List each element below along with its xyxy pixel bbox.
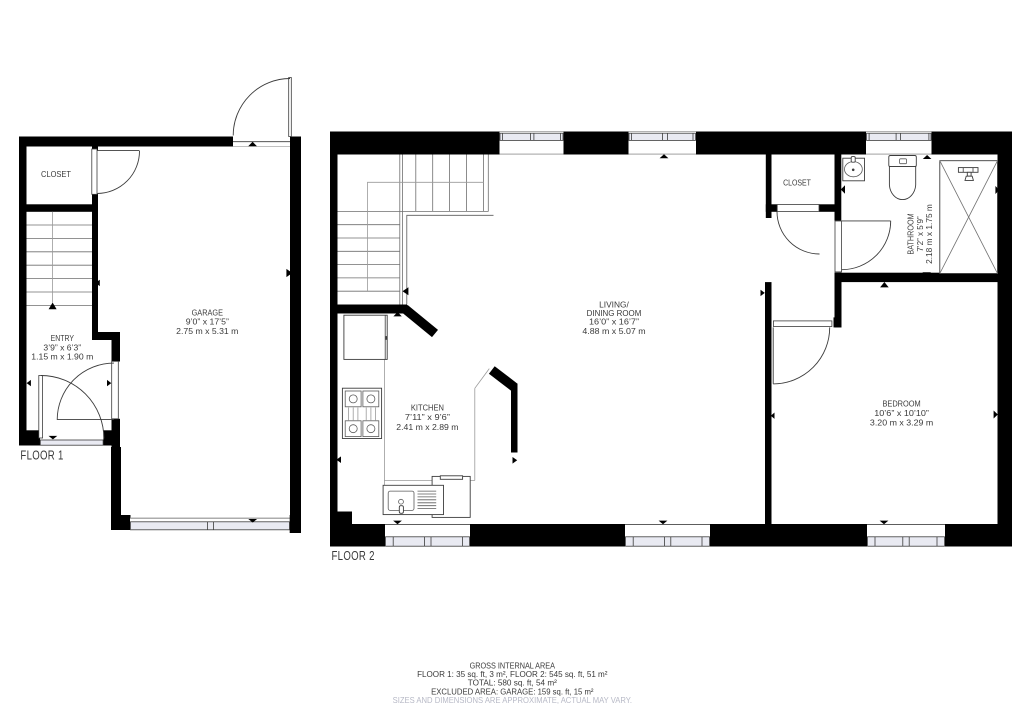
svg-text:3’9” x 6’3”: 3’9” x 6’3” (43, 343, 81, 352)
svg-text:2.41 m x 2.89 m: 2.41 m x 2.89 m (396, 423, 458, 432)
svg-text:3.20 m x 3.29 m: 3.20 m x 3.29 m (870, 418, 934, 427)
svg-text:2.75 m x 5.31 m: 2.75 m x 5.31 m (176, 327, 238, 336)
svg-text:16’0” x 16’7”: 16’0” x 16’7” (589, 318, 639, 327)
svg-text:SIZES AND DIMENSIONS ARE APPRO: SIZES AND DIMENSIONS ARE APPROXIMATE, AC… (393, 695, 632, 705)
svg-text:CLOSET: CLOSET (41, 169, 71, 179)
svg-text:7’2” x 5’9”: 7’2” x 5’9” (916, 216, 925, 252)
svg-text:BEDROOM: BEDROOM (882, 399, 920, 409)
svg-text:FLOOR 2: FLOOR 2 (332, 549, 375, 563)
svg-text:7’11” x 9’6”: 7’11” x 9’6” (405, 413, 450, 422)
svg-text:CLOSET: CLOSET (783, 178, 811, 188)
svg-text:ENTRY: ENTRY (51, 333, 75, 343)
svg-text:BATHROOM: BATHROOM (906, 213, 916, 254)
svg-text:9’0” x 17’5”: 9’0” x 17’5” (186, 318, 229, 327)
svg-text:1.15 m x 1.90 m: 1.15 m x 1.90 m (31, 353, 93, 362)
svg-text:4.88 m x 5.07 m: 4.88 m x 5.07 m (582, 327, 646, 336)
svg-text:KITCHEN: KITCHEN (411, 402, 444, 412)
svg-text:10’6” x 10’10”: 10’6” x 10’10” (874, 409, 929, 418)
svg-text:FLOOR 1: FLOOR 1 (20, 449, 63, 463)
svg-text:DINING ROOM: DINING ROOM (587, 308, 642, 318)
svg-text:2.18 m x 1.75 m: 2.18 m x 1.75 m (925, 204, 934, 264)
svg-text:GARAGE: GARAGE (192, 308, 224, 318)
